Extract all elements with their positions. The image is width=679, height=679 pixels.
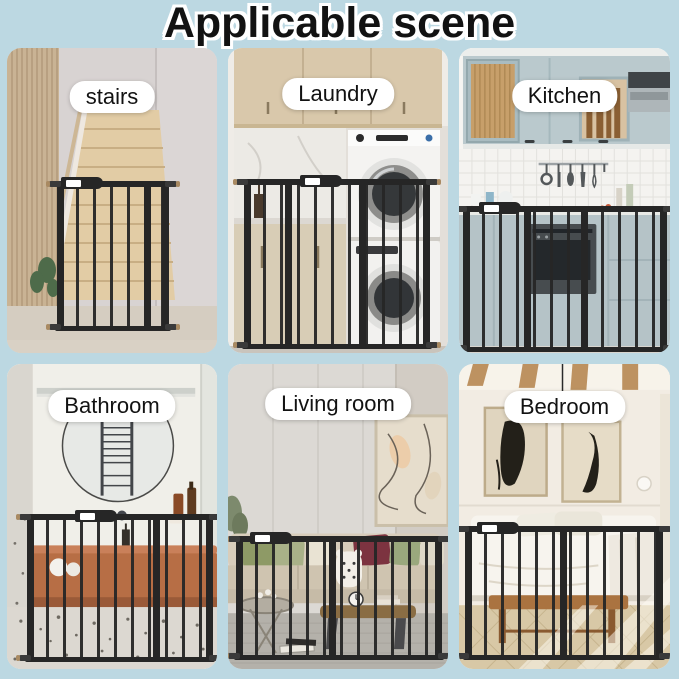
gate-latch <box>75 510 117 522</box>
gate-latch <box>250 532 292 544</box>
safety-gate <box>244 179 430 349</box>
scene-label-bedroom: Bedroom <box>504 391 625 423</box>
safety-gate <box>236 536 442 660</box>
safety-gate <box>57 181 169 331</box>
safety-gate <box>27 514 213 662</box>
panel-bedroom: Bedroom <box>459 364 670 669</box>
panel-living-room: Living room <box>228 364 448 669</box>
gate-latch <box>61 177 103 189</box>
scene-label-laundry: Laundry <box>282 78 394 110</box>
product-collage: Applicable scene <box>0 0 679 679</box>
safety-gate <box>465 526 663 660</box>
panel-bathroom: Bathroom <box>7 364 217 669</box>
scene-grid: stairs <box>7 48 670 669</box>
collage-title: Applicable scene <box>0 0 679 48</box>
gate-latch <box>477 522 519 534</box>
scene-label-stairs: stairs <box>70 81 155 113</box>
panel-stairs: stairs <box>7 48 217 353</box>
panel-kitchen: Kitchen <box>459 48 670 353</box>
gate-latch <box>479 202 521 214</box>
panel-laundry: Laundry <box>228 48 448 353</box>
gate-latch <box>300 175 342 187</box>
scene-label-living-room: Living room <box>265 388 411 420</box>
scene-label-kitchen: Kitchen <box>512 80 617 112</box>
safety-gate <box>463 206 667 352</box>
scene-label-bathroom: Bathroom <box>48 390 175 422</box>
